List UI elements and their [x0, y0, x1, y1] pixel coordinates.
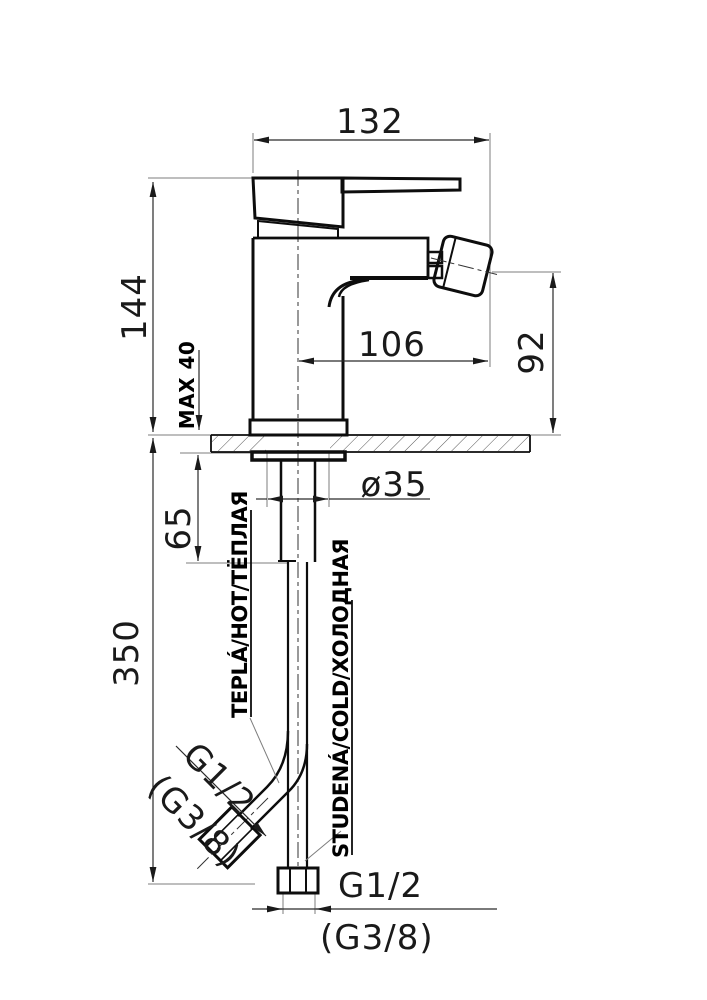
lever-handle — [342, 178, 460, 192]
dim-132: 132 — [336, 102, 404, 142]
cold-hose-fitting — [278, 868, 318, 893]
aerator-head — [425, 233, 504, 300]
dim-92: 92 — [512, 329, 552, 374]
technical-drawing-page: 132 144 350 65 92 106 ø35 MAX 40 TEPLÁ/H… — [0, 0, 707, 1000]
cold-water-label: STUDENÁ/COLD/ХОЛОДНАЯ — [328, 539, 353, 858]
spout-curve-outer — [329, 280, 362, 307]
dim-dia35: ø35 — [360, 465, 427, 505]
deck-hatch-right — [330, 436, 529, 451]
hot-label-leader — [250, 718, 279, 783]
dim-65: 65 — [159, 505, 199, 550]
dim-106: 106 — [358, 325, 426, 365]
cold-thread-label: G1/2 — [338, 866, 423, 906]
body-outline — [253, 238, 428, 277]
hot-water-label: TEPLÁ/HOT/ТЁПЛАЯ — [227, 491, 252, 718]
bidet-faucet-drawing: 132 144 350 65 92 106 ø35 MAX 40 TEPLÁ/H… — [0, 0, 707, 1000]
max-deck-thickness-label: MAX 40 — [175, 341, 199, 430]
dim-144: 144 — [115, 273, 155, 341]
spout-curve-inner — [339, 280, 369, 297]
countertop-section — [211, 435, 530, 452]
deck-hatch-left — [212, 436, 266, 451]
faucet-body — [250, 178, 503, 435]
cold-thread-alt-label: (G3/8) — [320, 918, 434, 958]
dim-350: 350 — [107, 619, 147, 687]
